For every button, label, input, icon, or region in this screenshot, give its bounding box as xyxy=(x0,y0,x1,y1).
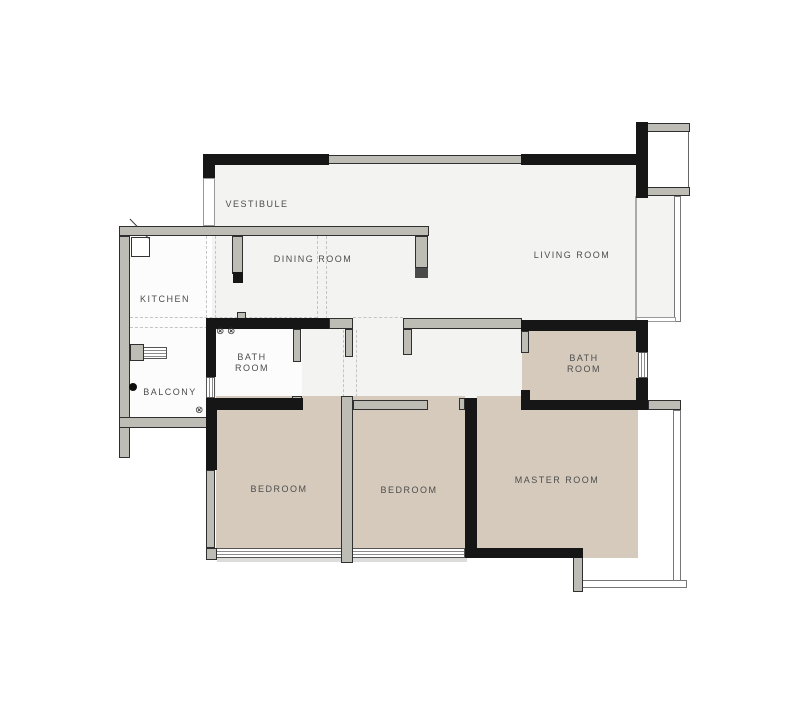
floor-bedroom-1 xyxy=(216,396,341,552)
kitchen-door-leaf xyxy=(131,237,150,257)
wall-vestibule-left xyxy=(203,165,215,178)
wall-living-northeast xyxy=(636,122,648,198)
floor-window-bay-strip xyxy=(636,196,676,322)
room-label-kitchen: KITCHEN xyxy=(125,294,205,305)
master-bay-window-horizontal xyxy=(578,580,687,588)
wall-bathroom-2-right-lower xyxy=(636,378,648,400)
wall-bathroom-2-top xyxy=(521,320,648,331)
dashed-line-hallway-left xyxy=(343,330,344,397)
wall-bathroom-1-bottom xyxy=(206,398,303,410)
dashed-line-hallway-opening xyxy=(353,317,403,318)
wall-shaft-cap-top xyxy=(645,123,690,132)
wall-bedroom-divider xyxy=(341,396,353,563)
floor-bedroom-2 xyxy=(353,396,465,552)
wall-hallway-top-jamb xyxy=(403,329,412,355)
wall-master-bottom xyxy=(465,548,583,558)
dashed-line-entry-left xyxy=(206,236,207,318)
living-bay-divider-line xyxy=(635,196,637,322)
wall-hallway-corner-horizontal xyxy=(329,318,353,329)
room-label-bathroom-1: BATH ROOM xyxy=(224,352,280,374)
room-label-dining-room: DINING ROOM xyxy=(253,254,373,265)
wall-bathroom-1-left xyxy=(206,329,216,377)
bedrooms-window xyxy=(215,548,465,558)
entry-door-opening xyxy=(203,178,215,226)
wall-bedroom-1-corner xyxy=(206,548,217,560)
dashed-line-kitchen-left xyxy=(317,236,318,319)
wall-top-window-band xyxy=(328,155,522,164)
wall-master-left xyxy=(465,398,477,558)
wall-balcony-bottom xyxy=(119,417,208,428)
room-label-master-room: MASTER ROOM xyxy=(497,475,617,486)
vent-icon: ⊗ xyxy=(227,327,235,337)
wall-bathroom-2-right-upper xyxy=(636,331,648,352)
wall-top-right xyxy=(521,154,648,165)
wall-balcony-top-stub xyxy=(130,344,144,361)
vent-icon: ⊗ xyxy=(216,327,224,337)
wall-master-bay-stub xyxy=(573,556,583,592)
room-label-bedroom-2: BEDROOM xyxy=(369,485,449,496)
dashed-line-hallway-right xyxy=(356,330,357,397)
wall-top-left xyxy=(203,154,329,165)
balcony-kitchen-window xyxy=(143,347,167,359)
living-room-bay-window xyxy=(674,196,681,322)
wall-vestibule-stub-left xyxy=(232,236,243,274)
bathroom-2-window xyxy=(638,352,648,378)
vent-icon: ⊗ xyxy=(195,406,203,416)
wall-bathroom-1-top xyxy=(206,318,329,329)
room-label-bedroom-1: BEDROOM xyxy=(239,484,319,495)
master-bay-window-vertical xyxy=(673,410,681,588)
wall-bathroom-2-bottom xyxy=(521,400,648,410)
utility-shaft-box xyxy=(645,131,689,188)
dashed-line-entry-right xyxy=(215,236,216,318)
wall-bedroom-1-window-bar xyxy=(206,470,215,548)
wall-vestibule-stub-right xyxy=(415,236,428,268)
dashed-line-kitchen-right xyxy=(326,236,327,319)
floor-plan-canvas: ⊗ ⊗ ⊗ VESTIBULE DINING ROOM LIVING ROOM … xyxy=(0,0,800,714)
wall-hallway-corner-vertical xyxy=(345,329,353,357)
wall-bathroom-1-door-jamb xyxy=(293,329,301,362)
room-label-living-room: LIVING ROOM xyxy=(512,250,632,261)
wall-shaft-cap-bottom xyxy=(645,187,690,196)
wall-hallway-top xyxy=(403,318,522,329)
wall-bathroom-2-cap-right xyxy=(648,400,681,410)
wall-bedroom-2-top xyxy=(353,400,428,410)
wall-kitchen-vestibule-top xyxy=(119,226,429,236)
wall-vestibule-stub-left-tip xyxy=(233,272,243,283)
room-label-balcony: BALCONY xyxy=(130,387,210,398)
wall-bathroom-2-left-stub xyxy=(521,390,530,400)
room-label-vestibule: VESTIBULE xyxy=(217,199,297,210)
wall-vestibule-stub-right-tip xyxy=(415,268,428,278)
wall-bathroom-2-door-jamb xyxy=(521,331,529,353)
room-label-bathroom-2: BATH ROOM xyxy=(556,353,612,375)
